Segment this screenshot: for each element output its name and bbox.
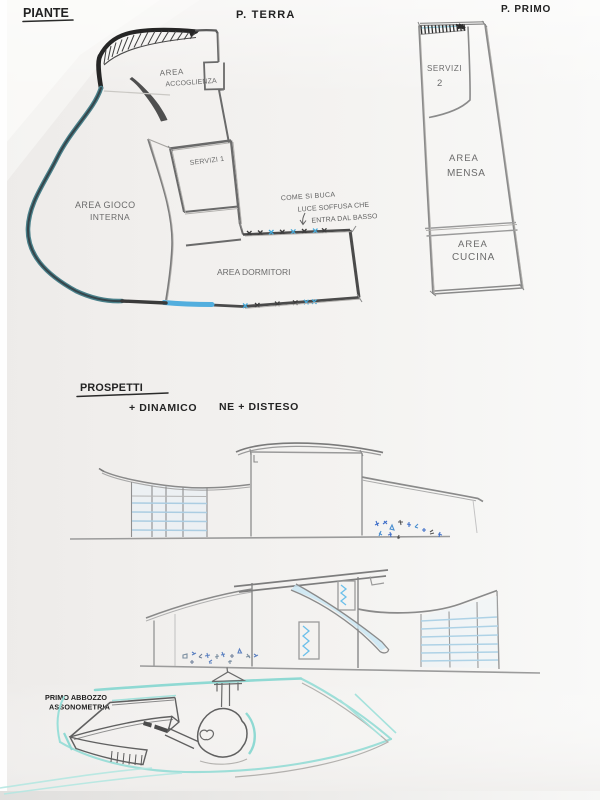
svg-text:+ DINAMICO: + DINAMICO	[129, 402, 197, 414]
svg-text:PIANTE: PIANTE	[23, 6, 69, 20]
svg-text:AREA: AREA	[458, 239, 488, 250]
svg-text:PROSPETTI: PROSPETTI	[80, 382, 143, 394]
svg-text:NE + DISTESO: NE + DISTESO	[219, 401, 299, 413]
svg-text:AREA: AREA	[159, 67, 184, 78]
svg-text:AREA DORMITORI: AREA DORMITORI	[217, 267, 291, 277]
svg-text:AREA: AREA	[449, 153, 479, 164]
svg-text:INTERNA: INTERNA	[90, 212, 130, 222]
svg-text:MENSA: MENSA	[447, 168, 486, 179]
svg-text:CUCINA: CUCINA	[452, 252, 495, 263]
svg-text:AREA GIOCO: AREA GIOCO	[75, 200, 136, 210]
svg-text:PRIMO ABBOZZO: PRIMO ABBOZZO	[45, 693, 107, 702]
svg-text:2: 2	[437, 78, 442, 89]
svg-text:P. PRIMO: P. PRIMO	[501, 4, 551, 15]
svg-text:P. TERRA: P. TERRA	[236, 9, 296, 21]
svg-text:SERVIZI: SERVIZI	[427, 64, 462, 73]
